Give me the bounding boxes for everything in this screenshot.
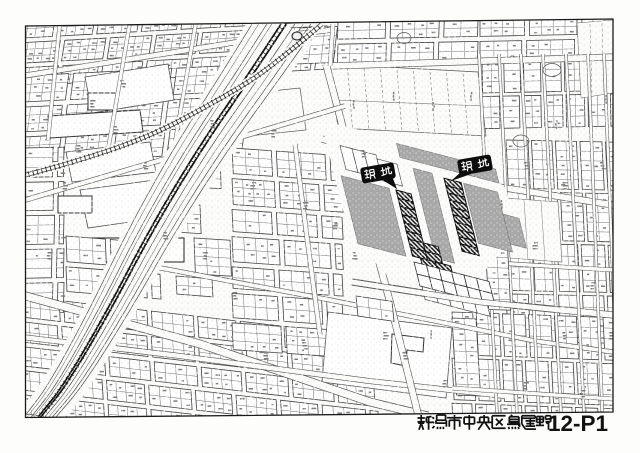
svg-text:12-P1: 12-P1 xyxy=(548,411,608,436)
